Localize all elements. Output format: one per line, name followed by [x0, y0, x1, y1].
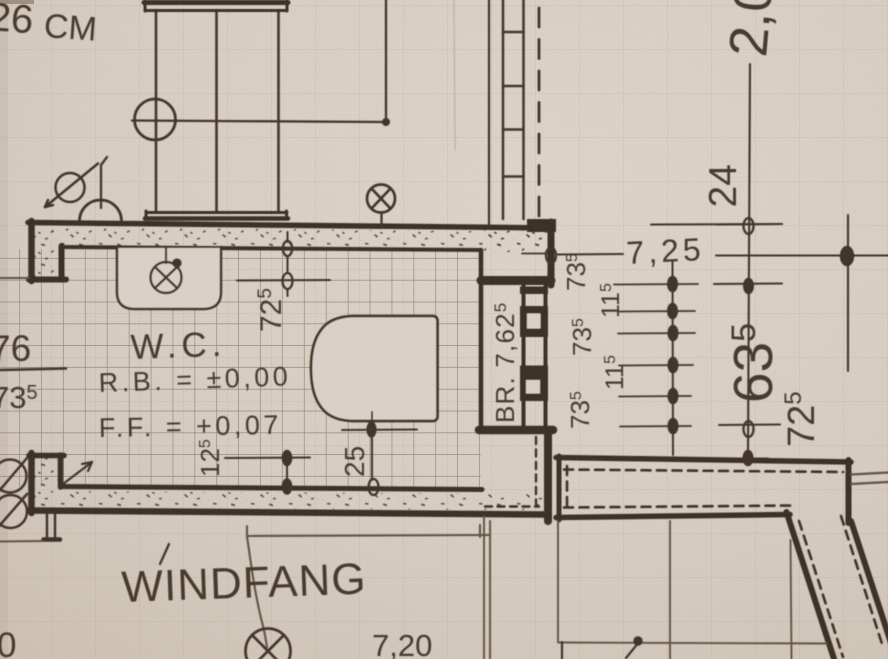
svg-text:0: 0 — [0, 626, 16, 659]
svg-text:W.C.: W.C. — [130, 325, 227, 367]
svg-text:7,20: 7,20 — [372, 628, 432, 659]
svg-text:2,0: 2,0 — [718, 0, 784, 59]
svg-text:7,25: 7,25 — [625, 231, 705, 271]
svg-text:25: 25 — [339, 446, 370, 477]
svg-text:WINDFANG: WINDFANG — [121, 554, 368, 612]
svg-text:BR. 7,625: BR. 7,625 — [490, 302, 520, 423]
svg-text:F.F. = +0,07: F.F. = +0,07 — [99, 410, 283, 443]
svg-text:24: 24 — [702, 164, 745, 207]
svg-text:76: 76 — [0, 328, 31, 369]
